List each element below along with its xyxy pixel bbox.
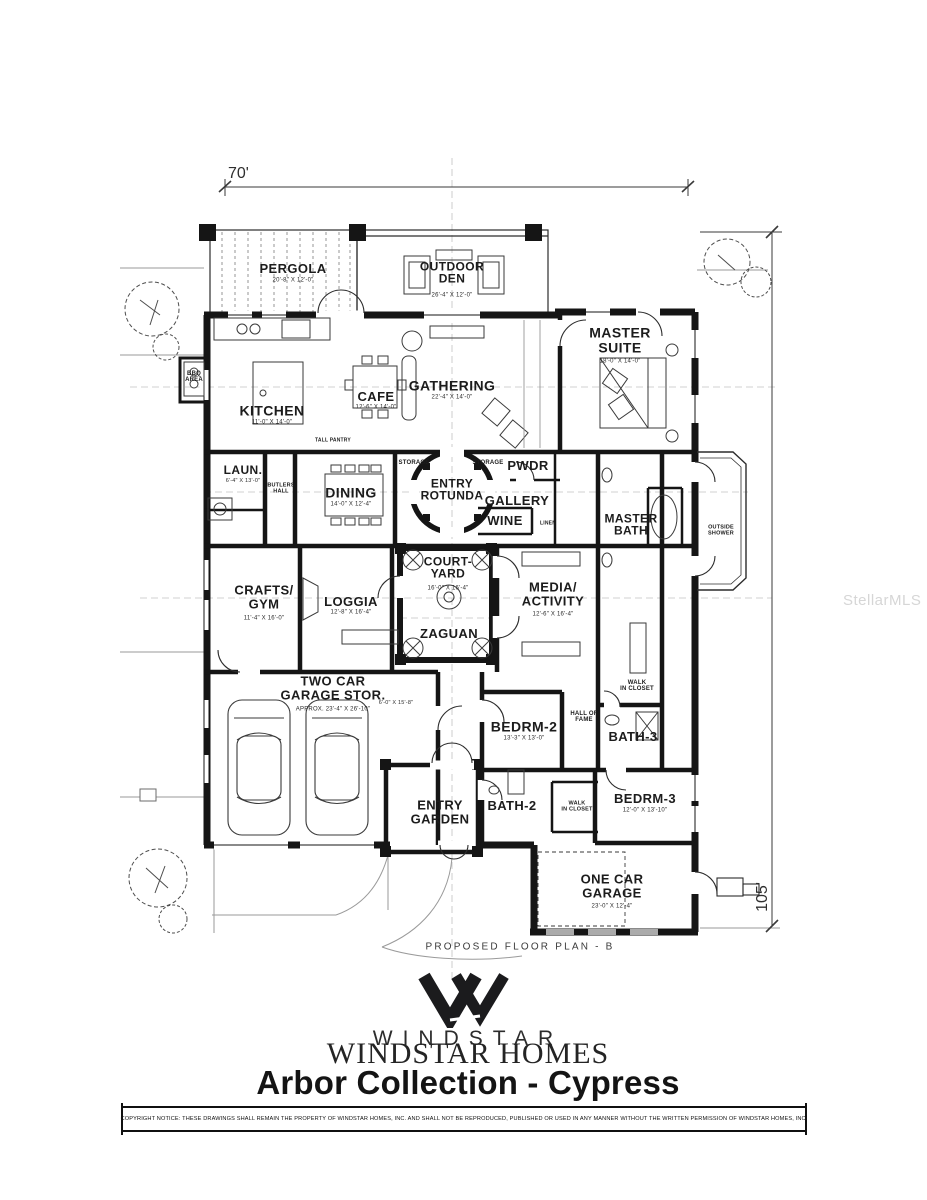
room-dims-outdoor-den: 26'-4" X 12'-0"	[432, 293, 473, 300]
copyright-notice: COPYRIGHT NOTICE: THESE DRAWINGS SHALL R…	[121, 1116, 808, 1122]
copyright-bar: COPYRIGHT NOTICE: THESE DRAWINGS SHALL R…	[123, 1106, 805, 1132]
room-label-dining: DINING	[325, 486, 376, 501]
room-label-butlers-hall: BUTLERS HALL	[267, 483, 294, 494]
room-label-pergola: PERGOLA	[259, 262, 326, 276]
room-label-outdoor-den: OUTDOOR DEN	[420, 261, 484, 286]
room-dims-dining: 14'-0" X 12'-4"	[331, 502, 372, 509]
room-dims-kitchen: 11'-0" X 14'-0"	[252, 420, 292, 427]
room-label-walkin-closet-2: WALK IN CLOSET	[561, 801, 592, 812]
room-label-one-car-garage: ONE CAR GARAGE	[581, 872, 644, 899]
car-icons	[228, 700, 368, 835]
room-label-master-suite: MASTER SUITE	[589, 325, 651, 354]
room-dims-pergola: 20'-8" X 12'-0"	[273, 278, 314, 285]
room-label-storage-left: STORAGE	[399, 460, 430, 466]
plan-caption: PROPOSED FLOOR PLAN - B	[426, 942, 615, 953]
dimension-height-label: 105'	[754, 882, 772, 912]
room-label-bedrm-2: BEDRM-2	[491, 720, 558, 735]
room-label-laundry: LAUN.	[224, 464, 263, 476]
room-label-bath-2: BATH-2	[487, 799, 536, 813]
room-label-outside-shower: OUTSIDE SHOWER	[708, 525, 734, 536]
windstar-logo-icon	[416, 972, 512, 1028]
room-dims-media-activity: 12'-6" X 16'-4"	[533, 612, 574, 619]
room-label-entry-garden: ENTRY GARDEN	[411, 798, 470, 825]
room-label-tall-pantry: TALL PANTRY	[315, 438, 351, 443]
room-label-bbq-area: BBQ AREA	[185, 371, 203, 383]
room-dims-one-car-garage: 23'-0" X 12'-4"	[592, 904, 633, 911]
room-label-two-car-garage: TWO CAR GARAGE STOR.	[281, 674, 386, 701]
room-label-master-bath: MASTER BATH	[604, 513, 657, 538]
stellar-mls-watermark: StellarMLS	[843, 592, 921, 609]
room-dims-gathering: 22'-4" X 14'-0"	[432, 395, 473, 402]
room-label-media-activity: MEDIA/ ACTIVITY	[522, 580, 584, 607]
room-dims-laundry: 6'-4" X 13'-0"	[226, 478, 261, 484]
copyright-bar-left-tick	[121, 1103, 123, 1135]
room-label-storage-right: STORAGE	[473, 460, 504, 466]
outside-shower-walls	[697, 452, 746, 590]
room-label-hall-of-fame: HALL OF FAME	[570, 711, 597, 723]
room-label-courtyard: COURT- YARD	[424, 556, 472, 581]
room-label-entry-rotunda: ENTRY ROTUNDA	[421, 478, 484, 503]
plan-title: Arbor Collection - Cypress	[256, 1064, 679, 1102]
room-label-bath-3: BATH-3	[608, 730, 657, 744]
copyright-bar-right-tick	[805, 1103, 807, 1135]
room-dims-crafts-gym: 11'-4" X 16'-0"	[244, 616, 284, 623]
room-label-loggia: LOGGIA	[324, 595, 378, 609]
site-lines	[120, 268, 780, 959]
room-label-pwdr: PWDR	[507, 459, 548, 473]
room-label-linen: LINEN	[540, 521, 556, 526]
room-label-gallery: GALLERY	[485, 494, 549, 508]
room-dims-loggia: 12'-8" X 16'-4"	[331, 610, 372, 617]
garage-door-segments	[546, 929, 658, 935]
dimension-width-label: 70'	[228, 165, 249, 183]
room-dims-garage-storage: 6'-0" X 15'-8"	[379, 700, 414, 706]
floorplan-sheet: PERGOLA 20'-8" X 12'-0" OUTDOOR DEN 26'-…	[0, 0, 927, 1200]
room-dims-bedrm-2: 13'-3" X 13'-0"	[504, 736, 545, 743]
room-dims-two-car-garage: APPROX. 23'-4" X 26'-10"	[296, 707, 370, 714]
room-label-zaguan: ZAGUAN	[420, 627, 478, 641]
room-label-bedrm-3: BEDRM-3	[614, 792, 676, 806]
room-label-crafts-gym: CRAFTS/ GYM	[234, 583, 293, 610]
room-label-gathering: GATHERING	[409, 379, 496, 394]
room-dims-courtyard: 16'-0" X 16'-4"	[428, 586, 469, 593]
room-label-kitchen: KITCHEN	[239, 404, 304, 419]
room-label-wine: WINE	[487, 514, 523, 528]
room-dims-bedrm-3: 12'-0" X 13'-10"	[623, 808, 667, 815]
room-dims-master-suite: 18'-0" X 14'-0"	[600, 359, 641, 366]
room-dims-cafe: 12'-6" X 14'-0"	[356, 405, 397, 412]
room-label-cafe: CAFE	[358, 390, 395, 404]
room-label-walkin-closet-master: WALK IN CLOSET	[620, 680, 654, 692]
